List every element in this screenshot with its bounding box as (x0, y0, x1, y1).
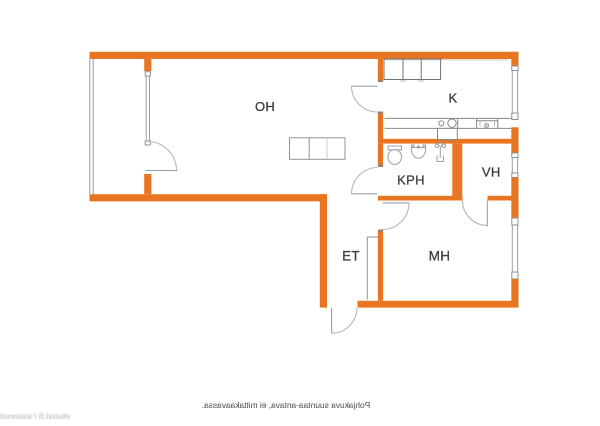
svg-text:VH: VH (482, 165, 501, 180)
svg-text:ET: ET (342, 248, 360, 263)
svg-text:KPH: KPH (397, 173, 425, 188)
svg-text:MH: MH (429, 248, 451, 263)
svg-text:OH: OH (255, 99, 275, 114)
svg-text:K: K (448, 91, 457, 106)
